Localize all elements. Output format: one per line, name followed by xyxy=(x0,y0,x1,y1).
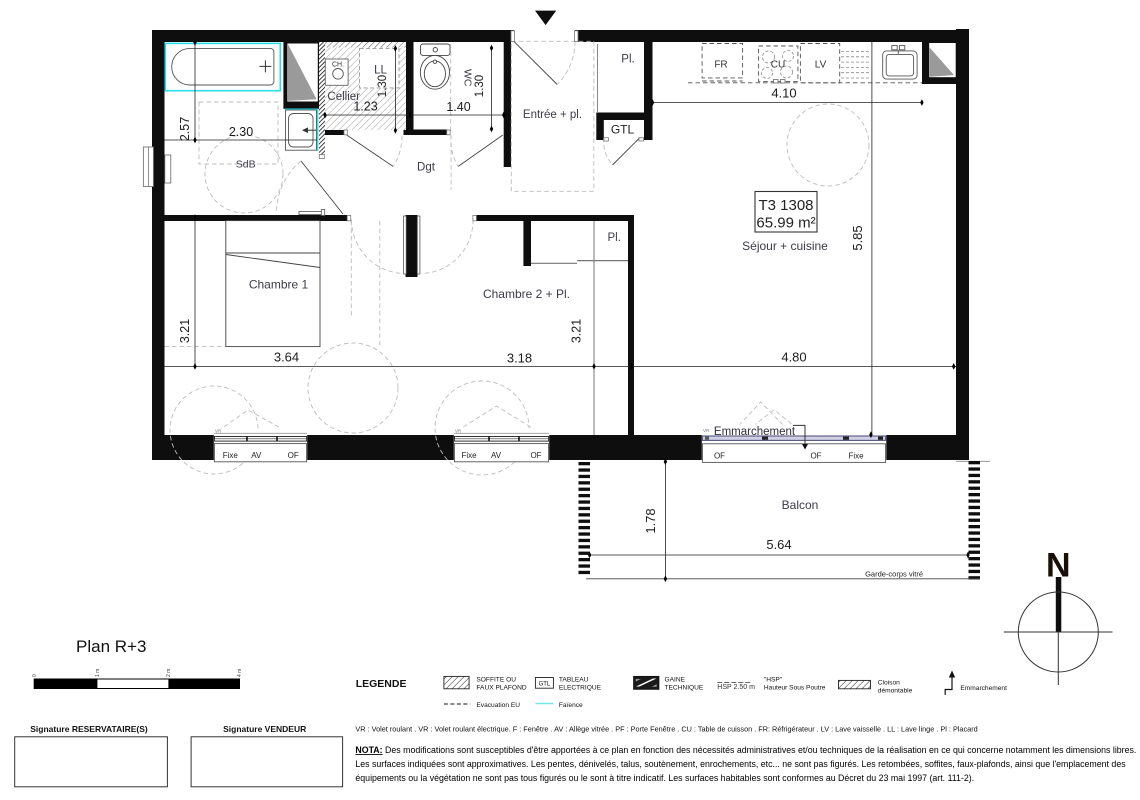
svg-text:LL: LL xyxy=(374,65,387,77)
svg-text:3.21: 3.21 xyxy=(178,319,192,343)
svg-text:Evacuation EU: Evacuation EU xyxy=(476,702,520,709)
svg-text:GTL: GTL xyxy=(539,682,551,688)
svg-text:GTL: GTL xyxy=(611,123,635,137)
svg-text:3.18: 3.18 xyxy=(507,351,532,366)
svg-text:Signature VENDEUR: Signature VENDEUR xyxy=(223,724,306,734)
svg-text:FAUX PLAFOND: FAUX PLAFOND xyxy=(476,685,526,692)
svg-text:1.40: 1.40 xyxy=(446,100,470,114)
svg-text:Garde-corps vitré: Garde-corps vitré xyxy=(865,570,923,579)
svg-text:Fixe: Fixe xyxy=(848,451,864,460)
svg-text:SOFFITE OU: SOFFITE OU xyxy=(476,677,516,684)
svg-text:1 m: 1 m xyxy=(95,669,101,677)
svg-text:OF: OF xyxy=(810,451,821,460)
svg-text:WC: WC xyxy=(462,69,474,87)
svg-text:1.30: 1.30 xyxy=(474,75,486,97)
svg-text:FR: FR xyxy=(714,60,727,71)
svg-text:GAINE: GAINE xyxy=(665,677,686,684)
svg-text:Fixe: Fixe xyxy=(461,451,477,460)
svg-text:1.78: 1.78 xyxy=(643,508,658,533)
svg-text:5.64: 5.64 xyxy=(766,537,791,552)
svg-text:3.64: 3.64 xyxy=(274,350,299,365)
svg-text:T3 1308: T3 1308 xyxy=(758,197,813,214)
svg-text:VR: VR xyxy=(215,429,222,434)
svg-text:"HSP": "HSP" xyxy=(764,677,783,684)
svg-text:2.57: 2.57 xyxy=(178,117,192,141)
svg-text:Emmarchement: Emmarchement xyxy=(960,685,1007,692)
svg-text:Chambre 1: Chambre 1 xyxy=(249,277,309,291)
svg-text:AV: AV xyxy=(491,451,502,460)
svg-text:VR: VR xyxy=(455,429,462,434)
svg-text:VR: VR xyxy=(703,428,710,433)
svg-text:VR : Volet roulant . VR : Vole: VR : Volet roulant . VR : Volet roulant … xyxy=(355,725,977,734)
svg-text:4 m: 4 m xyxy=(237,669,243,677)
svg-text:Signature RESERVATAIRE(S): Signature RESERVATAIRE(S) xyxy=(30,724,148,734)
svg-text:Dgt: Dgt xyxy=(417,162,436,174)
svg-text:1.30: 1.30 xyxy=(377,75,389,97)
svg-text:Séjour + cuisine: Séjour + cuisine xyxy=(742,239,828,253)
svg-text:Fixe: Fixe xyxy=(223,451,239,460)
svg-text:5.85: 5.85 xyxy=(850,225,865,250)
svg-text:OF: OF xyxy=(530,451,541,460)
svg-text:Les surfaces indiquées sont ap: Les surfaces indiquées sont approximativ… xyxy=(355,759,1126,769)
svg-text:65.99 m²: 65.99 m² xyxy=(756,215,815,232)
svg-text:2 m: 2 m xyxy=(166,669,172,677)
svg-text:4.10: 4.10 xyxy=(771,86,796,101)
svg-text:Cellier: Cellier xyxy=(327,91,360,103)
svg-text:TECHNIQUE: TECHNIQUE xyxy=(665,685,704,692)
svg-text:Pl.: Pl. xyxy=(607,232,620,244)
svg-text:LV: LV xyxy=(815,60,827,71)
svg-text:Chambre 2 + Pl.: Chambre 2 + Pl. xyxy=(483,287,570,301)
svg-text:SdB: SdB xyxy=(236,159,256,171)
svg-text:HSP 2.50 m: HSP 2.50 m xyxy=(717,684,755,691)
svg-text:AV: AV xyxy=(251,451,262,460)
svg-text:équipements ou la végétation n: équipements ou la végétation ne sont pas… xyxy=(355,773,974,783)
svg-text:Pl.: Pl. xyxy=(621,54,634,66)
svg-text:Balcon: Balcon xyxy=(782,498,819,512)
svg-text:0: 0 xyxy=(32,674,38,677)
svg-text:OF: OF xyxy=(288,451,299,460)
svg-text:CU: CU xyxy=(771,60,785,71)
svg-text:3.21: 3.21 xyxy=(569,319,583,343)
svg-text:Plan R+3: Plan R+3 xyxy=(76,637,146,656)
svg-text:LEGENDE: LEGENDE xyxy=(356,678,407,690)
svg-text:ELECTRIQUE: ELECTRIQUE xyxy=(559,685,602,692)
svg-text:NOTA: Des modifications sont s: NOTA: Des modifications sont susceptible… xyxy=(355,745,1136,755)
svg-text:4.80: 4.80 xyxy=(781,350,806,365)
svg-text:TABLEAU: TABLEAU xyxy=(559,677,589,684)
svg-text:CH.: CH. xyxy=(332,62,344,69)
svg-text:OF: OF xyxy=(714,451,725,460)
svg-text:Faïence: Faïence xyxy=(559,702,583,709)
svg-text:démontable: démontable xyxy=(878,688,913,695)
svg-text:Cloison: Cloison xyxy=(878,680,900,687)
svg-text:Hauteur Sous Poutre: Hauteur Sous Poutre xyxy=(764,685,826,692)
svg-text:Entrée + pl.: Entrée + pl. xyxy=(523,109,582,121)
svg-text:2.30: 2.30 xyxy=(229,125,253,139)
